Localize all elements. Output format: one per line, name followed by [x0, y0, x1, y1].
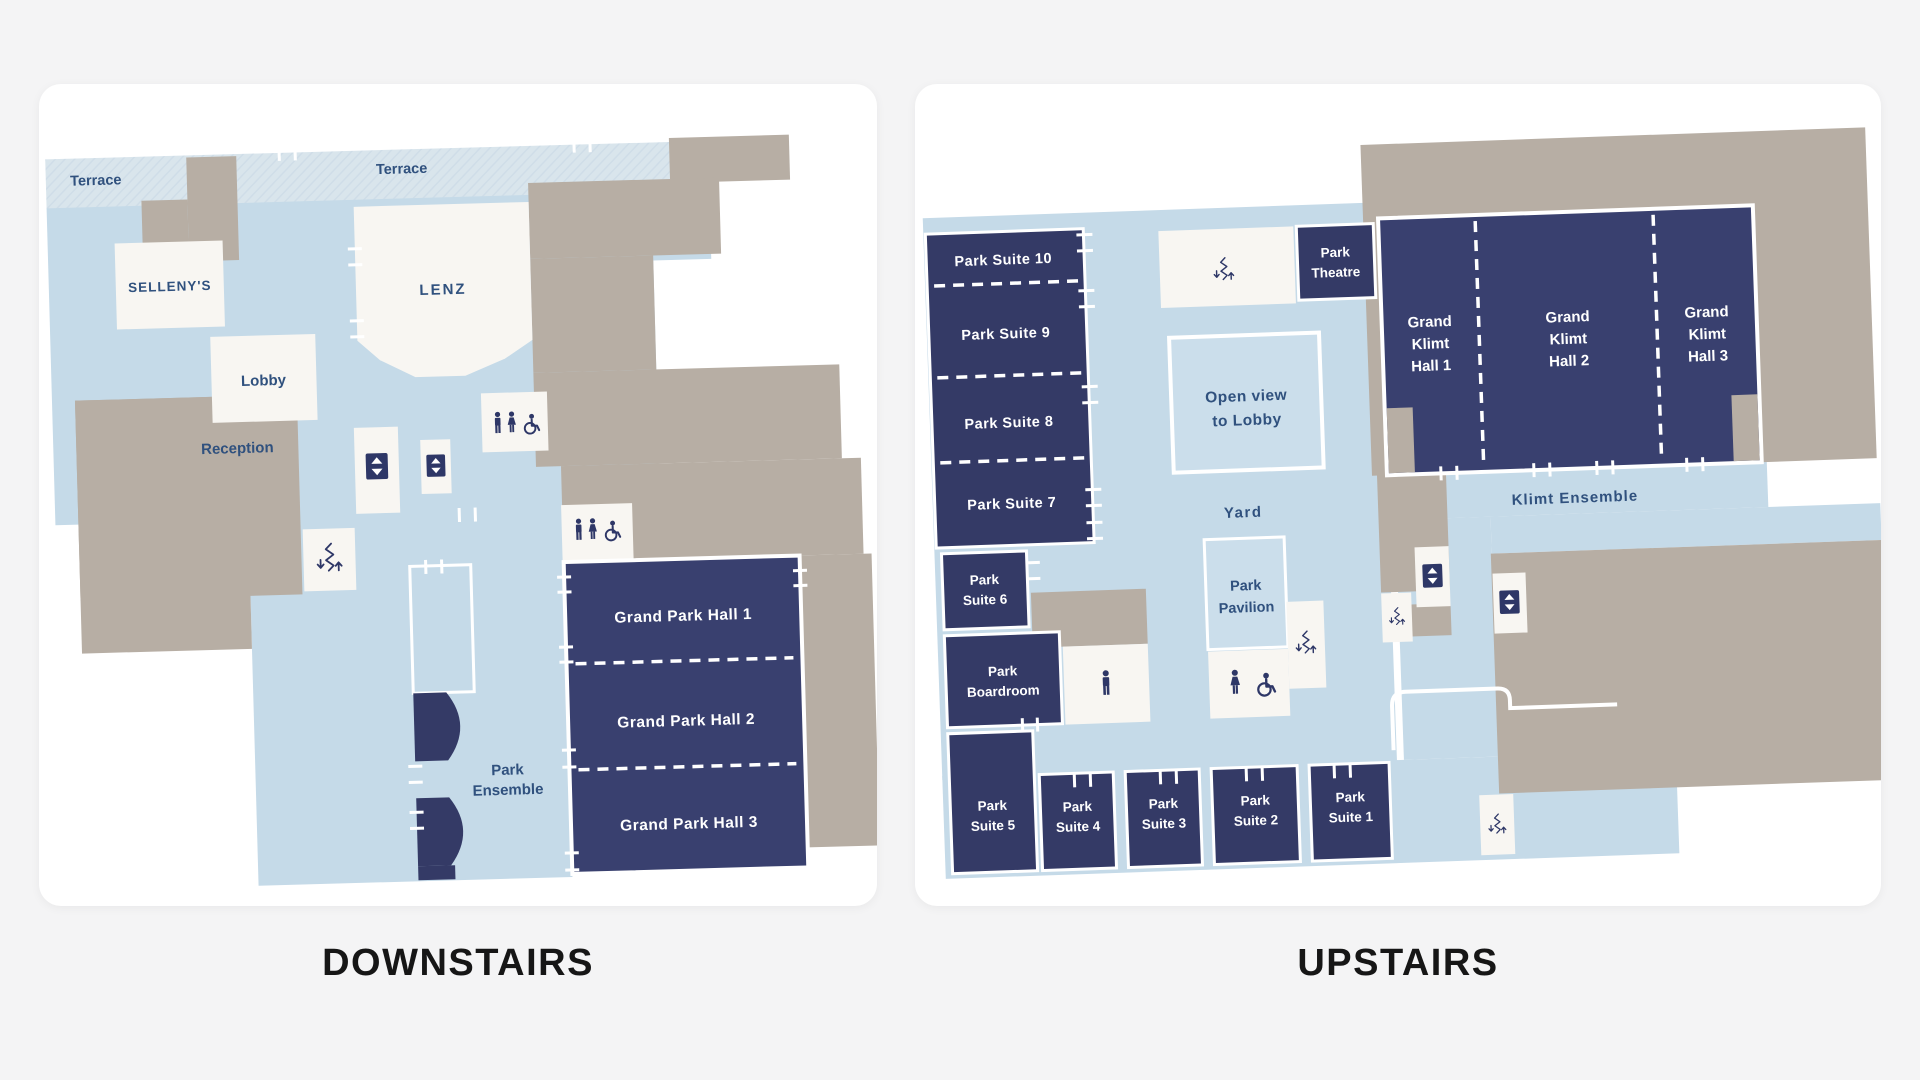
label-park-suite-9: Park Suite 9 [961, 325, 1051, 344]
label-park-boardroom: Boardroom [967, 683, 1040, 701]
downstairs-title: DOWNSTAIRS [39, 938, 877, 988]
room-park-theatre [1296, 224, 1376, 301]
label-park-suite-6: Suite 6 [963, 592, 1008, 609]
label-park-suite-3: Park [1148, 796, 1178, 812]
label-terrace-right: Terrace [376, 161, 428, 178]
room-outline [410, 565, 475, 694]
label-park-suite-8: Park Suite 8 [964, 414, 1054, 433]
svg-text:Grand: Grand [1545, 308, 1590, 327]
restroom-room [1208, 649, 1290, 719]
label-park-theatre: Park [1320, 244, 1350, 260]
label-park-suite-2: Suite 2 [1234, 812, 1279, 829]
upstairs-title: UPSTAIRS [915, 938, 1881, 988]
label-park-boardroom: Park [988, 663, 1018, 679]
label-park-suite-6: Park [970, 572, 1000, 588]
gray-block [1411, 603, 1452, 636]
stairs-room [1381, 592, 1413, 642]
room-park-suite-6 [941, 551, 1029, 630]
gray-notch [1731, 394, 1759, 461]
svg-text:Grand: Grand [1407, 313, 1452, 332]
label-open-view: to Lobby [1212, 411, 1282, 430]
label-park-suite-5: Park [977, 798, 1007, 814]
label-grand-klimt-hall-1: Grand Klimt Hall 1 [1407, 313, 1453, 376]
elevator-icon [366, 453, 389, 480]
svg-text:Grand: Grand [1684, 303, 1729, 322]
label-park-suite-1: Park [1335, 789, 1365, 805]
label-grand-klimt-hall-2: Grand Klimt Hall 2 [1545, 308, 1591, 371]
gray-block [669, 135, 790, 183]
gray-block [800, 554, 877, 848]
room-park-boardroom [944, 632, 1062, 728]
downstairs-map-card: Grand Park Hall 1 Grand Park Hall 2 Gran… [39, 84, 877, 906]
label-park-theatre: Theatre [1311, 264, 1361, 281]
gray-block [1491, 540, 1881, 794]
stairs-room [1286, 601, 1326, 689]
upstairs-map-card: Park Suite 10 Park Suite 9 Park Suite 8 … [915, 84, 1881, 906]
label-park-suite-4: Park [1062, 799, 1092, 815]
stage-block [418, 865, 455, 880]
label-park-suite-1: Suite 1 [1329, 809, 1374, 826]
svg-text:Hall 1: Hall 1 [1411, 357, 1452, 375]
label-open-view: Open view [1205, 387, 1288, 407]
label-park-pavilion: Park [1230, 578, 1263, 595]
gray-block [533, 364, 842, 467]
label-park-suite-3: Suite 3 [1142, 815, 1187, 832]
svg-text:Klimt: Klimt [1688, 325, 1726, 343]
label-park-suite-2: Park [1240, 793, 1270, 809]
elevator-icon [1499, 590, 1520, 614]
label-park-pavilion: Pavilion [1218, 599, 1274, 617]
svg-text:Hall 3: Hall 3 [1688, 347, 1729, 365]
restroom-room [561, 503, 634, 561]
label-yard: Yard [1224, 504, 1263, 522]
stairs-room [1158, 226, 1296, 308]
elevator-icon [426, 454, 445, 477]
stairs-room [303, 528, 357, 591]
label-grand-klimt-hall-3: Grand Klimt Hall 3 [1684, 303, 1730, 366]
label-reception: Reception [201, 439, 274, 458]
svg-text:Klimt: Klimt [1411, 335, 1449, 353]
label-park-suite-4: Suite 4 [1056, 818, 1101, 835]
label-terrace-left: Terrace [70, 172, 122, 189]
label-park-suite-5: Suite 5 [971, 817, 1016, 834]
label-lenz: LENZ [419, 281, 467, 299]
svg-text:Hall 2: Hall 2 [1549, 352, 1590, 370]
gray-block [75, 396, 252, 654]
svg-text:Klimt: Klimt [1549, 330, 1587, 348]
label-park-suite-10: Park Suite 10 [954, 251, 1052, 270]
label-lobby: Lobby [241, 372, 287, 390]
gray-block [528, 178, 721, 259]
label-park-suite-7: Park Suite 7 [967, 495, 1057, 514]
elevator-icon [1422, 564, 1443, 588]
gray-block [530, 255, 656, 372]
label-park-ensemble: Park [491, 761, 525, 779]
label-park-ensemble: Ensemble [472, 781, 543, 800]
upstairs-floorplan: Park Suite 10 Park Suite 9 Park Suite 8 … [915, 84, 1881, 906]
gray-notch [1387, 407, 1415, 473]
label-sellenys: SELLENY'S [128, 278, 212, 295]
downstairs-floorplan: Grand Park Hall 1 Grand Park Hall 2 Gran… [39, 84, 877, 906]
